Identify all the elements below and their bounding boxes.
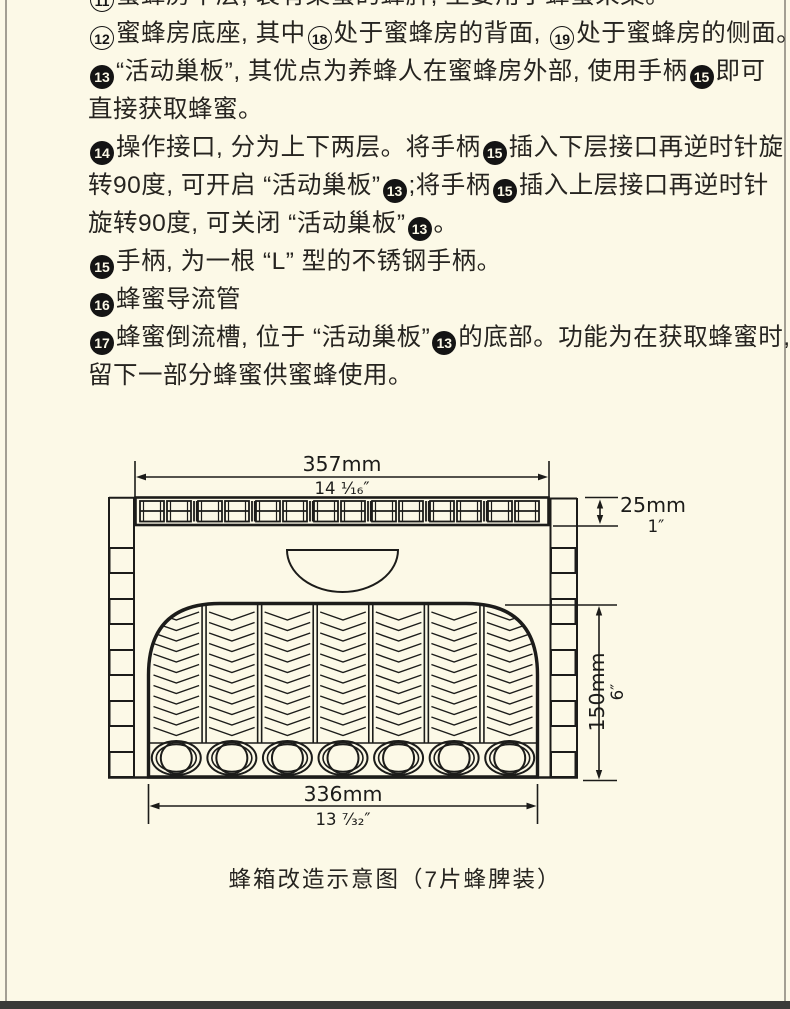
description-text-run: 蜂蜜倒流槽, 位于 “活动巢板” <box>116 324 430 351</box>
description-line: 15手柄, 为一根 “L” 型的不锈钢手柄。 <box>88 243 748 281</box>
circled-number-badge: 15 <box>690 65 714 89</box>
circled-number-badge: 12 <box>90 26 114 50</box>
circled-number-badge: 16 <box>90 293 114 317</box>
circled-number-badge: 13 <box>408 217 432 241</box>
circled-number-badge: 15 <box>90 255 114 279</box>
dim-13in-label: 13 ⁷⁄₃₂″ <box>315 810 370 829</box>
description-text-run: ;将手柄 <box>409 172 491 199</box>
description-line: 17蜂蜜倒流槽, 位于 “活动巢板”13的底部。功能为在获取蜂蜜时, <box>88 319 748 357</box>
slat-strip <box>136 498 549 526</box>
circled-number-badge: 13 <box>432 331 456 355</box>
dim-357mm-label: 357mm <box>302 452 381 476</box>
dim-14in-label: 14 ¹⁄₁₆″ <box>314 479 369 498</box>
description-text-run: “活动巢板”, 其优点为养蜂人在蜜蜂房外部, 使用手柄 <box>116 58 688 85</box>
bottom-width-dimension: 336mm 13 ⁷⁄₃₂″ <box>149 782 538 829</box>
description-text-run: 留下一部分蜂蜜供蜜蜂使用。 <box>88 362 413 389</box>
circled-number-badge: 17 <box>90 331 114 355</box>
description-line: 直接获取蜂蜜。 <box>88 91 748 129</box>
body-height-dimension: 150mm 6″ <box>505 605 627 781</box>
circled-number-badge: 15 <box>493 179 517 203</box>
description-line: 转90度, 可开启 “活动巢板”13;将手柄15插入上层接口再逆时针 <box>88 167 748 205</box>
description-text-run: 即可 <box>716 58 766 85</box>
circled-number-badge: 13 <box>383 179 407 203</box>
dim-150mm-label: 150mm <box>585 652 609 731</box>
description-text-run: 操作接口, 分为上下两层。将手柄 <box>116 134 481 161</box>
description-text-run: 插入下层接口再逆时针旋 <box>509 134 784 161</box>
parts-description-text: 11蜜蜂房中层, 装有集蜜的蜂脾, 主要用于蜂蜜采集。12蜜蜂房底座, 其中18… <box>88 0 748 395</box>
description-text-run: 手柄, 为一根 “L” 型的不锈钢手柄。 <box>116 248 502 275</box>
dim-336mm-label: 336mm <box>303 782 382 806</box>
description-line: 12蜜蜂房底座, 其中18处于蜜蜂房的背面, 19处于蜜蜂房的侧面。 <box>88 15 748 53</box>
dim-25mm-label: 25mm <box>620 493 686 517</box>
description-line: 11蜜蜂房中层, 装有集蜜的蜂脾, 主要用于蜂蜜采集。 <box>88 0 748 15</box>
handle-cutout <box>287 550 398 592</box>
dim-6in-label: 6″ <box>608 684 627 701</box>
description-text-run: 处于蜜蜂房的背面, <box>334 20 549 47</box>
circled-number-badge: 19 <box>550 26 574 50</box>
description-text-run: 蜜蜂房底座, 其中 <box>116 20 306 47</box>
beehive-diagram: 357mm 14 ¹⁄₁₆″ <box>90 440 710 860</box>
description-line: 16蜂蜜导流管 <box>88 281 748 319</box>
description-line: 13“活动巢板”, 其优点为养蜂人在蜜蜂房外部, 使用手柄15即可 <box>88 53 748 91</box>
left-page-rule <box>5 0 7 1009</box>
comb-area <box>149 604 538 778</box>
description-text-run: 处于蜜蜂房的侧面。 <box>576 20 790 47</box>
page-footer-bar <box>0 1001 790 1009</box>
description-text-run: 蜂蜜导流管 <box>116 286 241 313</box>
circled-number-badge: 15 <box>483 141 507 165</box>
right-page-rule <box>784 0 786 1009</box>
description-line: 旋转90度, 可关闭 “活动巢板”13。 <box>88 205 748 243</box>
description-text-run: 蜜蜂房中层, 装有集蜜的蜂脾, 主要用于蜂蜜采集。 <box>116 0 670 9</box>
dim-1in-label: 1″ <box>648 517 665 536</box>
circled-number-badge: 11 <box>90 0 114 12</box>
description-line: 留下一部分蜂蜜供蜜蜂使用。 <box>88 357 748 395</box>
description-text-run: 。 <box>434 210 459 237</box>
document-page: 11蜜蜂房中层, 装有集蜜的蜂脾, 主要用于蜂蜜采集。12蜜蜂房底座, 其中18… <box>0 0 790 1009</box>
description-text-run: 转90度, 可开启 “活动巢板” <box>88 172 381 199</box>
diagram-caption: 蜂箱改造示意图（7片蜂脾装） <box>0 862 790 894</box>
description-line: 14操作接口, 分为上下两层。将手柄15插入下层接口再逆时针旋 <box>88 129 748 167</box>
description-text-run: 直接获取蜂蜜。 <box>88 96 263 123</box>
description-text-run: 插入上层接口再逆时针 <box>519 172 769 199</box>
circled-number-badge: 14 <box>90 141 114 165</box>
description-text-run: 旋转90度, 可关闭 “活动巢板” <box>88 210 406 237</box>
circled-number-badge: 18 <box>308 26 332 50</box>
description-text-run: 的底部。功能为在获取蜂蜜时, <box>458 324 790 351</box>
top-width-dimension: 357mm 14 ¹⁄₁₆″ <box>135 452 549 498</box>
circled-number-badge: 13 <box>90 65 114 89</box>
